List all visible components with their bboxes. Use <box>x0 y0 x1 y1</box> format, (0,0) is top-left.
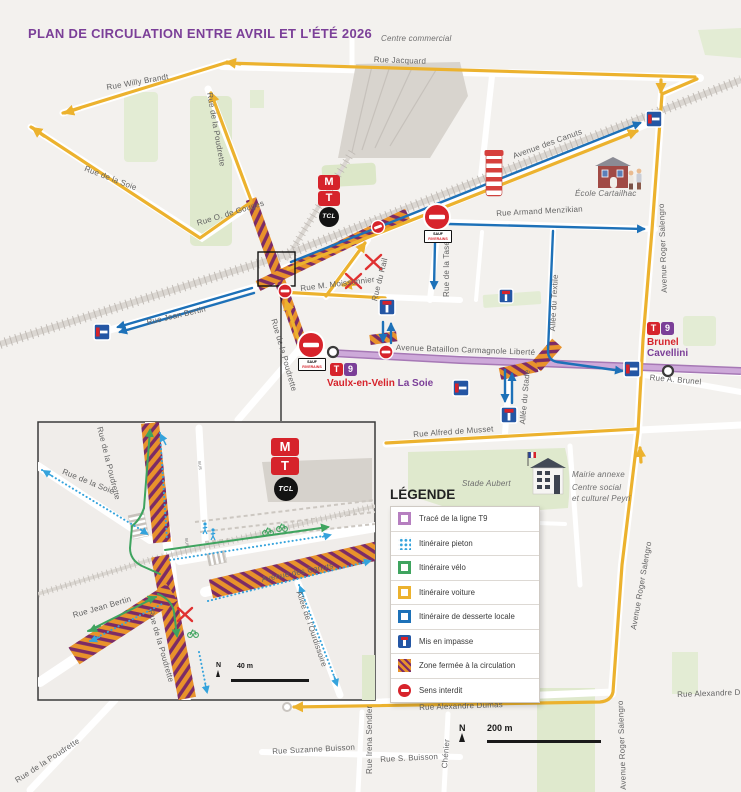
tcl-icon: TCL <box>274 477 298 501</box>
map-canvas <box>0 0 741 792</box>
velo-legend-swatch-icon <box>398 561 411 574</box>
scale-bar <box>231 679 309 682</box>
impasse-legend-swatch-icon <box>398 635 411 648</box>
north-arrow-icon <box>216 670 220 677</box>
legend-item-label: Itinéraire pieton <box>419 539 473 548</box>
legend-box: Tracé de la ligne T9Itinéraire pietonIti… <box>390 506 540 703</box>
legend-item-impasse: Mis en impasse <box>391 629 539 654</box>
north-arrow-icon <box>459 733 465 742</box>
legend-item-velo: Itinéraire vélo <box>391 555 539 580</box>
legend-item-label: Tracé de la ligne T9 <box>419 514 487 523</box>
legend: LÉGENDE Tracé de la ligne T9Itinéraire p… <box>390 487 540 703</box>
circulation-plan-map: PLAN DE CIRCULATION ENTRE AVRIL ET L'ÉTÉ… <box>0 0 741 792</box>
street-label: Rue de la Tase <box>443 241 451 297</box>
legend-item-label: Itinéraire voiture <box>419 588 475 597</box>
street-label: BUS <box>197 461 202 470</box>
sauf-riverains-plaque: SAUFRIVERAINS <box>424 230 452 243</box>
street-label: Centre commercial <box>381 35 452 43</box>
legend-item-label: Itinéraire vélo <box>419 563 466 572</box>
sens-legend-swatch-icon <box>398 684 411 697</box>
legend-item-label: Itinéraire de desserte locale <box>419 612 515 621</box>
street-label: et culturel Peyri <box>572 495 631 503</box>
north-label: N <box>216 662 221 669</box>
pieton-legend-swatch-icon <box>398 537 411 550</box>
legend-item-sens: Sens interdit <box>391 678 539 703</box>
legend-item-zone: Zone fermée à la circulation <box>391 653 539 678</box>
scale-label: 200 m <box>487 723 513 733</box>
station-label-cavellini: Cavellini <box>647 348 688 359</box>
page-title: PLAN DE CIRCULATION ENTRE AVRIL ET L'ÉTÉ… <box>28 26 372 41</box>
legend-item-label: Zone fermée à la circulation <box>419 661 515 670</box>
legend-item-t9: Tracé de la ligne T9 <box>391 507 539 531</box>
legend-item-pieton: Itinéraire pieton <box>391 531 539 556</box>
scale-label: 40 m <box>237 663 253 670</box>
legend-item-desserte: Itinéraire de desserte locale <box>391 604 539 629</box>
legend-item-label: Sens interdit <box>419 686 462 695</box>
t9-legend-swatch-icon <box>398 512 411 525</box>
station-label-brunel: Brunel <box>647 337 679 348</box>
roundabout-circle <box>283 703 291 711</box>
zone-legend-swatch-icon <box>398 659 411 672</box>
street-label: Centre social <box>572 484 621 492</box>
metro-icon: M <box>271 438 299 456</box>
t9-line-badge: T <box>647 322 660 335</box>
legend-item-label: Mis en impasse <box>419 637 473 646</box>
station-name-stop: La Soie <box>398 378 434 389</box>
chimney-landmark-icon <box>485 150 504 196</box>
scale-bar <box>487 740 601 743</box>
street-label: BUS <box>184 538 189 547</box>
tram-icon: T <box>271 457 299 475</box>
desserte-legend-swatch-icon <box>398 610 411 623</box>
tram-icon: T <box>318 191 340 206</box>
t9-number-badge: 9 <box>344 363 357 376</box>
t9-number-badge: 9 <box>661 322 674 335</box>
station-label-la-soie: Vaulx-en-Velin La Soie <box>327 378 433 389</box>
street-label: École Cartailhac <box>575 190 636 198</box>
t9-line-badge: T <box>330 363 343 376</box>
station-name-city: Vaulx-en-Velin <box>327 378 395 389</box>
metro-icon: M <box>318 175 340 190</box>
legend-item-voiture: Itinéraire voiture <box>391 580 539 605</box>
tcl-icon: TCL <box>319 207 339 227</box>
north-label: N <box>459 723 466 733</box>
voiture-legend-swatch-icon <box>398 586 411 599</box>
sauf-riverains-plaque: SAUFRIVERAINS <box>298 358 326 371</box>
legend-title: LÉGENDE <box>390 487 540 502</box>
street-label: Mairie annexe <box>572 471 625 479</box>
street-label: Rue Irena Sendler <box>366 706 374 774</box>
